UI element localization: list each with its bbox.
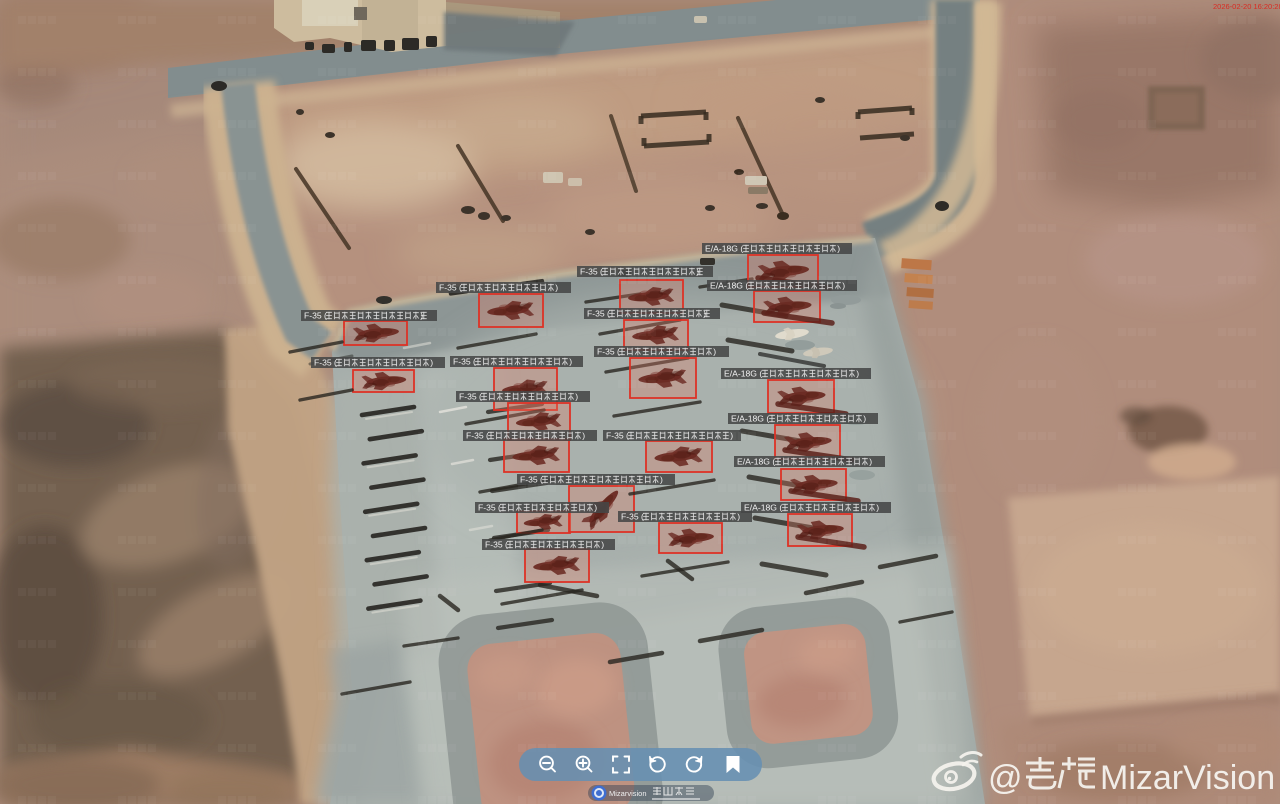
svg-text:MizarVision: MizarVision	[1100, 759, 1275, 797]
svg-text:2026-02-20 16:20:28: 2026-02-20 16:20:28	[1213, 2, 1280, 11]
svg-text:Mizarvision: Mizarvision	[609, 789, 647, 798]
svg-text:@: @	[988, 759, 1023, 797]
